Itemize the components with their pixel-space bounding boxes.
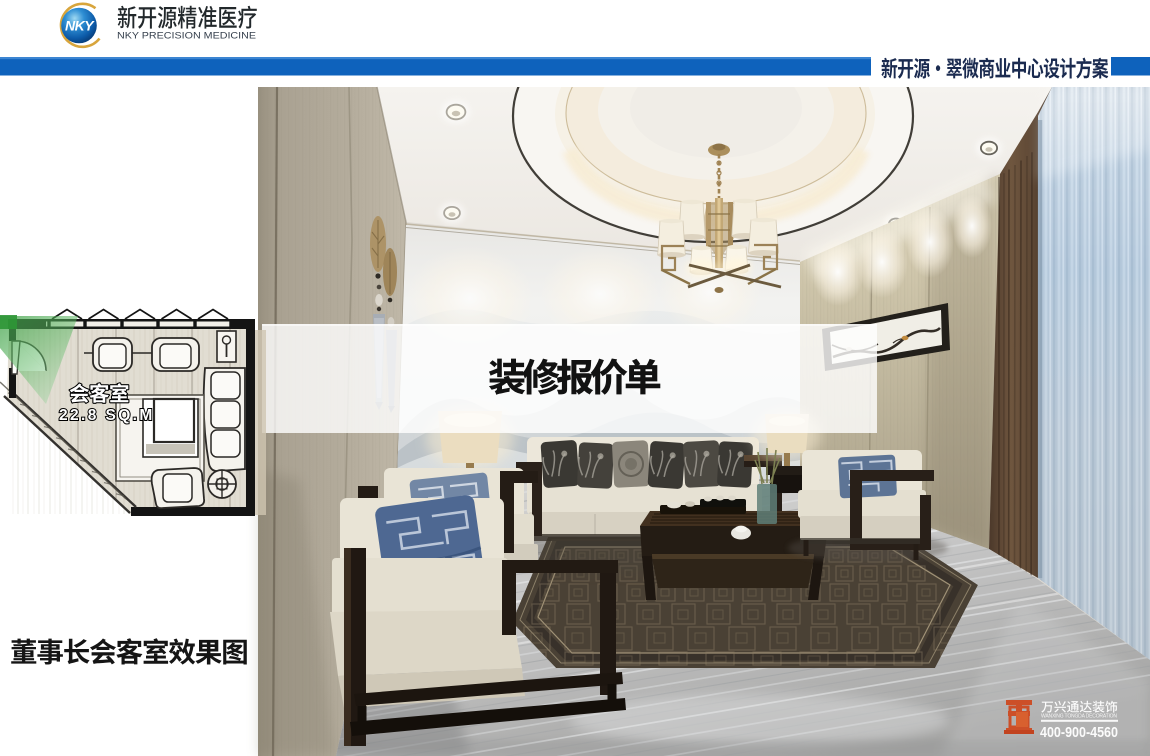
svg-text:22.8 SQ.M: 22.8 SQ.M xyxy=(59,407,155,424)
svg-text:400-900-4560: 400-900-4560 xyxy=(1040,725,1118,741)
svg-text:NKY PRECISION MEDICINE: NKY PRECISION MEDICINE xyxy=(117,30,256,41)
svg-text:NKY: NKY xyxy=(65,18,95,34)
svg-text:WANXING TONGDA DECORATION: WANXING TONGDA DECORATION xyxy=(1041,714,1117,720)
